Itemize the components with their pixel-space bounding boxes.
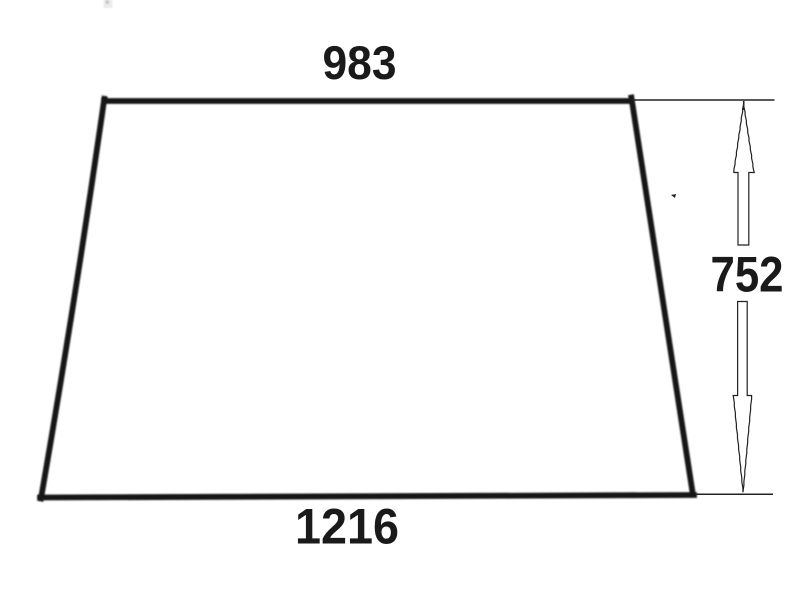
svg-text:1216: 1216 <box>295 499 399 555</box>
svg-text:983: 983 <box>323 36 397 89</box>
svg-text:752: 752 <box>711 247 784 303</box>
